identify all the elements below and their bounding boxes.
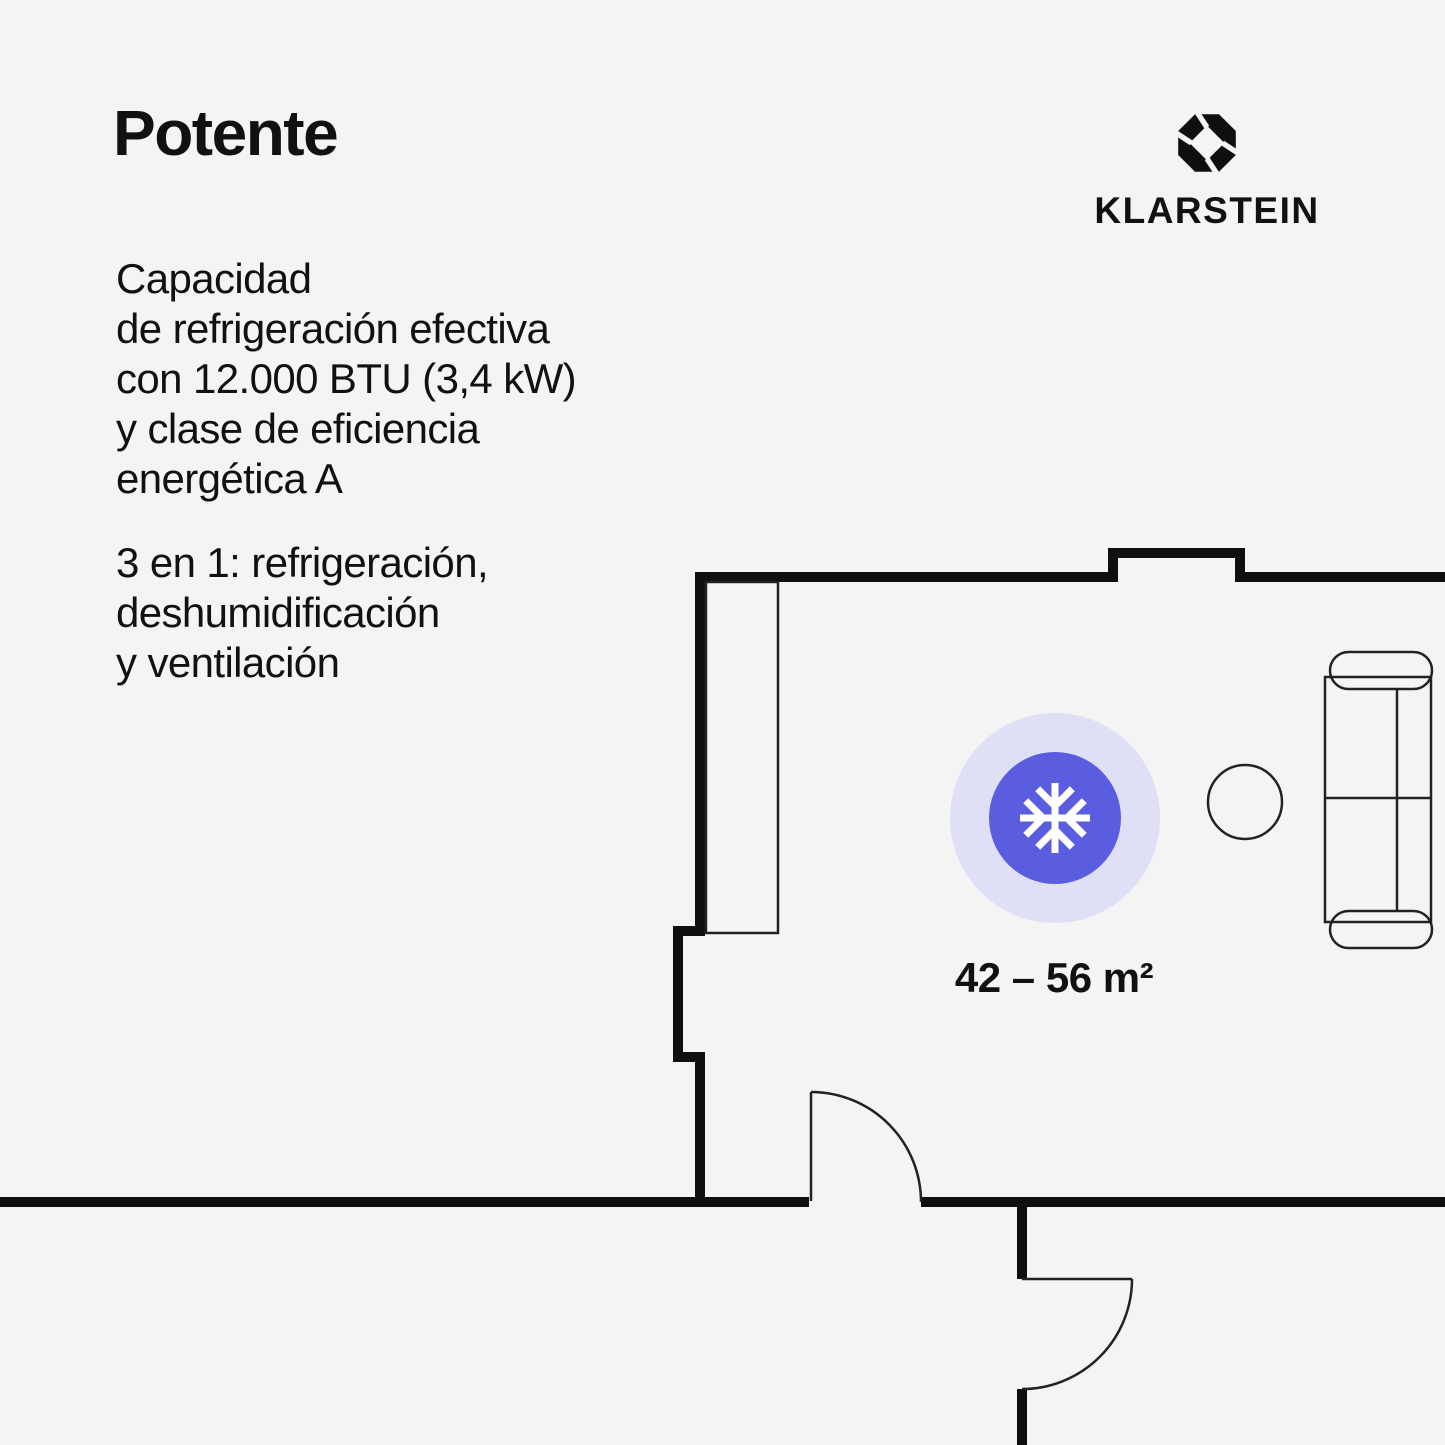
- wall-wardrobe: [706, 582, 778, 933]
- area-range-label: 42 – 56 m²: [854, 953, 1254, 1003]
- infographic-canvas: Potente Capacidad de refrigeración efect…: [0, 0, 1445, 1445]
- modes-description: 3 en 1: refrigeración, deshumidificación…: [116, 538, 488, 688]
- brand-logo: KLARSTEIN: [1057, 113, 1357, 232]
- swing-door-bottom: [811, 1092, 921, 1202]
- capacity-description: Capacidad de refrigeración efectiva con …: [116, 254, 576, 504]
- page-title: Potente: [113, 98, 337, 168]
- klarstein-octagon-icon: [1177, 113, 1237, 173]
- side-table: [1208, 765, 1282, 839]
- brand-wordmark: KLARSTEIN: [1057, 190, 1357, 232]
- swing-door-right: [1022, 1279, 1132, 1389]
- sofa: [1325, 652, 1432, 948]
